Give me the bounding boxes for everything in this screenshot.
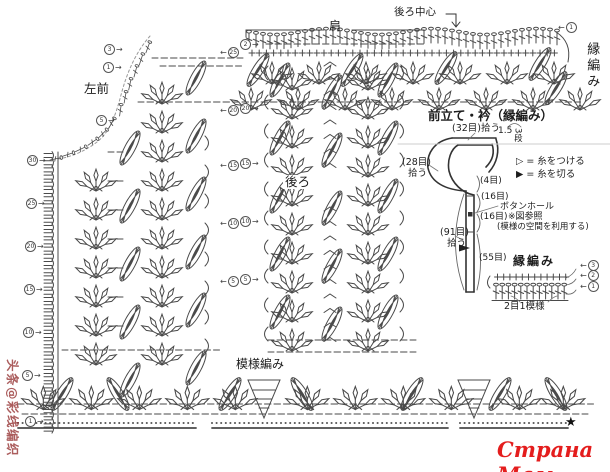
pickup-91-label2: 拾う [447,239,466,249]
row-marker: 30→ [27,155,46,166]
pattern-stitch-label: 模様編み [236,358,284,371]
back-center-label: 後ろ中心 [394,7,436,19]
row-marker: 1→ [103,62,122,73]
row-marker: ←10 [220,218,239,229]
row-marker: ←1 [580,281,599,292]
row-marker: 20→ [25,241,44,252]
height-1-5-label: 1.5 [498,127,512,137]
star-mark: ★ [565,415,577,430]
edge-chart-title: 縁編み [513,255,555,268]
pickup-91-label: (91目) [440,228,469,238]
row-marker: ←2 [580,270,599,281]
row-marker: 5→ [22,370,41,381]
row-marker: 25→ [26,198,45,209]
crochet-pattern-page: ←13→1→5→30→25→20→15→10→5→1→←25←20←15←10←… [0,0,610,472]
row-marker: 10→ [240,216,259,227]
row-marker: 5→ [96,115,115,126]
row-marker: ←25 [220,47,239,58]
row-marker: 15→ [24,284,43,295]
count-4-label: (4目) [480,177,502,187]
shoulder-label: 肩 [329,20,341,33]
crochet-diagram-canvas [0,0,610,472]
schematic-title: 前立て・衿（縁編み） [428,109,553,123]
row-marker: 1→ [25,416,44,427]
pickup-28-label2: 拾う [408,169,427,179]
row-marker: ←1 [558,22,577,33]
count-55-label: (55目) [479,254,506,264]
row-marker: ←15 [220,160,239,171]
row-marker: ←5 [220,276,239,287]
left-watermark: 头条@彩线编织 [7,349,23,467]
row-marker: 3→ [104,44,123,55]
legend-attach-yarn: ▷ = 糸をつける [516,157,585,167]
pickup-32-label: (32目)拾う [452,124,500,134]
row-marker: 15→ [240,158,259,169]
row-marker: 2→ [240,39,259,50]
row-marker: 10→ [23,327,42,338]
edge-crochet-vertical-label: 縁編み [584,42,598,90]
repeat-label: 2目1模様 [504,302,545,312]
back-label: 後ろ [283,175,312,189]
rows-3-label: 3段 [512,128,521,142]
use-space-note: (模様の空間を利用する) [497,223,589,232]
row-marker: ←20 [220,105,239,116]
row-marker: 20→ [240,103,259,114]
left-front-label: 左前 [84,82,109,96]
pickup-28-label: (28目) [402,158,431,168]
legend-cut-yarn: ▶ = 糸を切る [516,170,575,180]
row-marker: 5→ [240,274,259,285]
site-watermark: Страна Мам [497,437,610,472]
